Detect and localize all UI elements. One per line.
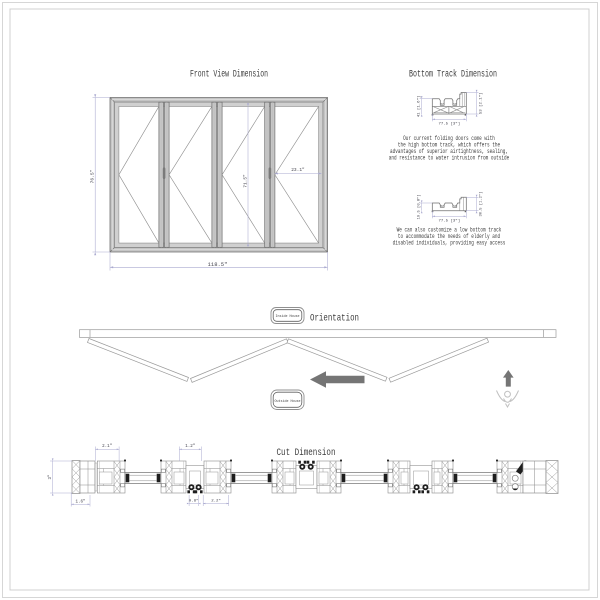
svg-text:41 [1.6"]: 41 [1.6"] (417, 96, 422, 118)
svg-text:Front View Dimension: Front View Dimension (190, 69, 268, 81)
svg-text:77.5 [3"]: 77.5 [3"] (438, 122, 460, 127)
svg-text:2.1": 2.1" (102, 444, 112, 449)
svg-text:118.5": 118.5" (208, 261, 228, 268)
svg-text:2.2": 2.2" (211, 499, 221, 504)
svg-text:Orientation: Orientation (310, 313, 359, 325)
svg-text:0.8": 0.8" (189, 499, 199, 504)
svg-text:Bottom Track Dimension: Bottom Track Dimension (409, 69, 497, 81)
svg-text:23.1": 23.1" (291, 167, 305, 173)
svg-text:Inside House: Inside House (276, 314, 300, 319)
svg-text:30.5 [1.2"]: 30.5 [1.2"] (478, 191, 483, 216)
svg-text:and resistance to water intrus: and resistance to water intrusion from o… (389, 155, 510, 162)
svg-text:3": 3" (48, 474, 53, 479)
svg-text:71.5": 71.5" (242, 174, 248, 188)
svg-text:Outside House: Outside House (275, 399, 301, 404)
svg-text:Cut Dimension: Cut Dimension (277, 447, 336, 459)
svg-text:53 [2.1"]: 53 [2.1"] (478, 92, 483, 114)
svg-text:disabled individuals, providin: disabled individuals, providing easy acc… (393, 240, 506, 247)
svg-text:76.5": 76.5" (89, 169, 95, 183)
svg-text:1.2": 1.2" (185, 444, 195, 449)
svg-text:77.5 [3"]: 77.5 [3"] (438, 219, 460, 224)
svg-text:1.6": 1.6" (75, 499, 85, 504)
svg-text:19.5 [0.8"]: 19.5 [0.8"] (417, 194, 422, 219)
